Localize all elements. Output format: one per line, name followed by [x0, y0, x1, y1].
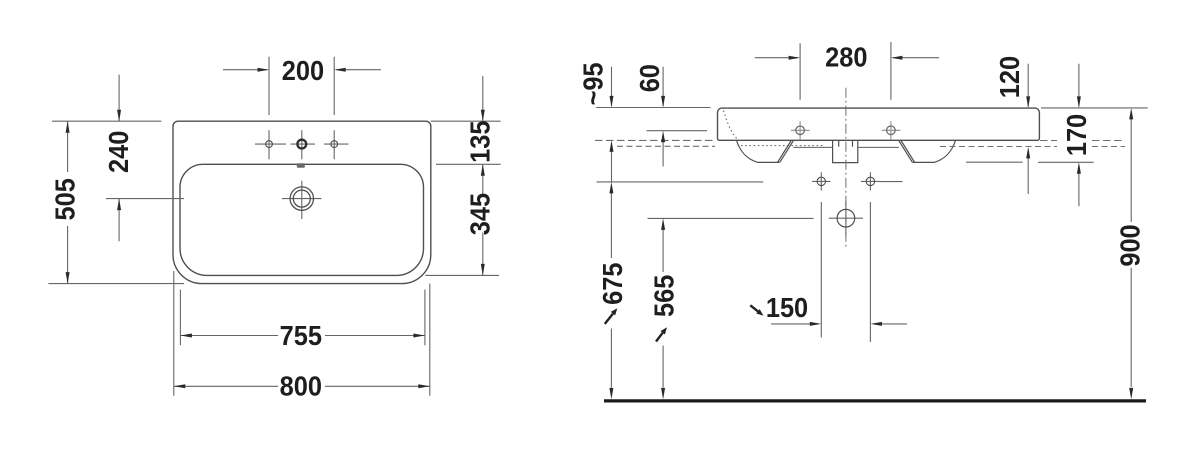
svg-text:~95: ~95 [577, 62, 609, 105]
svg-text:900: 900 [1114, 224, 1146, 266]
svg-text:505: 505 [49, 178, 81, 220]
svg-text:150: 150 [766, 292, 808, 324]
svg-text:170: 170 [1061, 114, 1093, 156]
svg-text:135: 135 [464, 120, 496, 162]
svg-text:120: 120 [994, 56, 1026, 98]
svg-text:345: 345 [464, 193, 496, 235]
svg-text:60: 60 [634, 64, 666, 92]
svg-text:280: 280 [825, 41, 867, 73]
svg-text:565: 565 [648, 275, 680, 317]
svg-text:755: 755 [280, 320, 322, 352]
svg-text:240: 240 [103, 131, 135, 173]
svg-text:200: 200 [282, 55, 324, 87]
svg-text:800: 800 [280, 370, 322, 402]
svg-text:675: 675 [597, 262, 629, 304]
